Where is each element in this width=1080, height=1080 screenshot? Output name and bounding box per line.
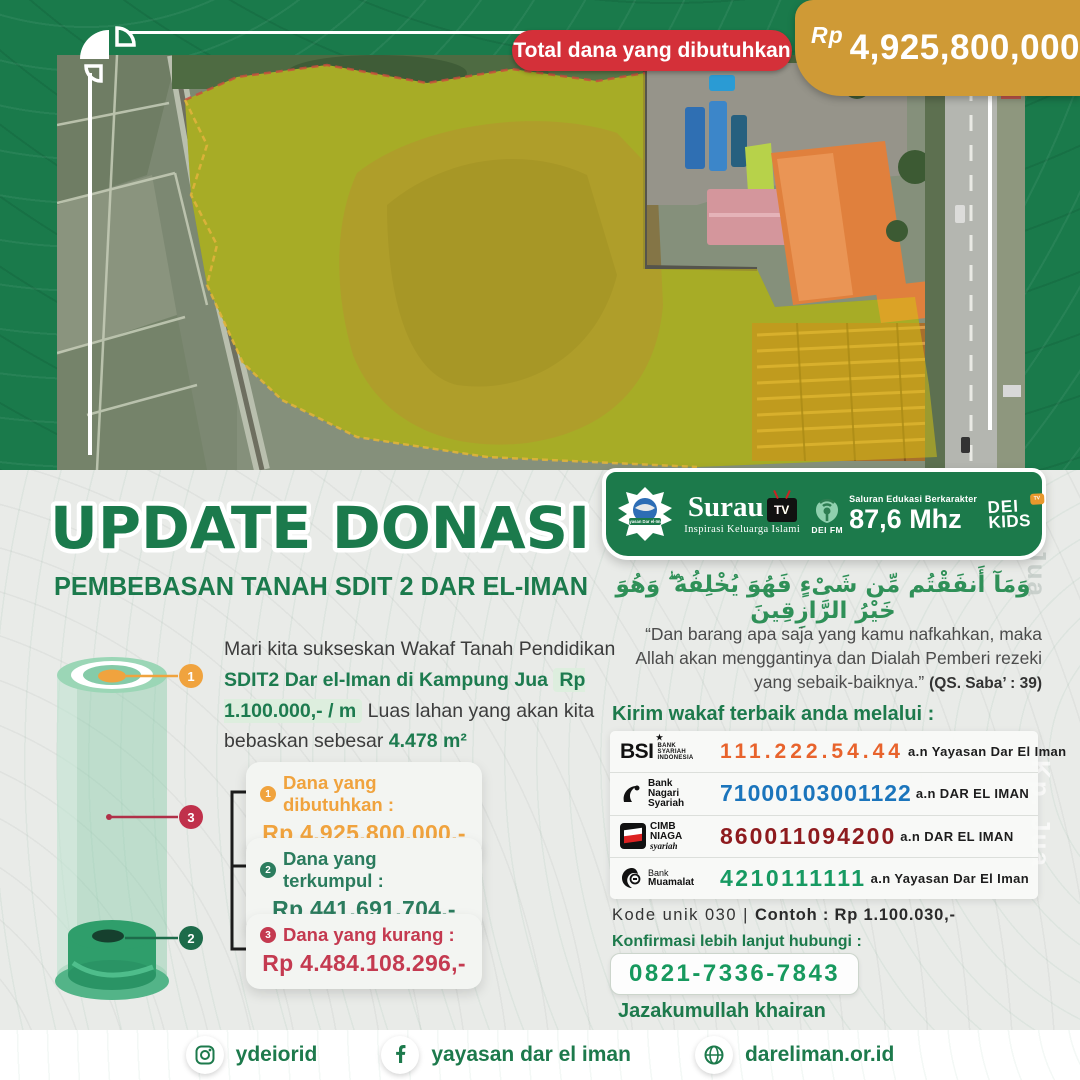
dei-fm-frequency: 87,6 Mhz [849, 506, 977, 533]
tv-letters: TV [774, 504, 789, 516]
nagari-line: Syariah [648, 799, 684, 809]
donation-poster: Total dana yang dibutuhkan Rp 4,925,800,… [0, 0, 1080, 1080]
bank-muamalat-logo: Bank Muamalat [620, 866, 716, 890]
cimb-syariah-script: syariah [650, 842, 682, 851]
bsi-wordmark: BSI [620, 740, 654, 764]
unique-code-example: Contoh : Rp 1.100.030,- [755, 906, 956, 924]
currency-label: Rp [811, 22, 844, 49]
nagari-account-holder: a.n DAR EL IMAN [916, 786, 1078, 801]
bank-row-muamalat: Bank Muamalat 4210111111 a.n Yayasan Dar… [610, 857, 1038, 899]
card-number-badge: 2 [260, 862, 276, 878]
muamalat-account-number: 4210111111 [720, 865, 867, 892]
muamalat-account-holder: a.n Yayasan Dar El Iman [871, 871, 1033, 886]
nagari-crescent-icon [620, 782, 644, 806]
instagram-item[interactable]: ydeiorid [186, 1036, 318, 1074]
card-value: Rp 4.484.108.296,- [260, 950, 468, 977]
bank-row-nagari: Bank Nagari Syariah 71000103001122 a.n D… [610, 772, 1038, 814]
surau-tv-tagline: Inspirasi Keluarga Islami [684, 525, 800, 536]
bank-row-cimb: CIMB NIAGA syariah 860011094200 a.n DAR … [610, 815, 1038, 857]
cimb-square-icon [620, 823, 646, 849]
card-number-badge: 3 [260, 927, 276, 943]
confirmation-heading: Konfirmasi lebih lanjut hubungi : [612, 933, 862, 951]
verse-reference: (QS. Saba’ : 39) [929, 675, 1042, 692]
yayasan-dar-el-iman-logo: Yayasan Dar el-Iman [617, 486, 673, 542]
aerial-photo-graphic [57, 55, 1025, 470]
contact-phone-number[interactable]: 0821-7336-7843 [610, 953, 859, 995]
bsi-logo: BSI BANK SYARIAH INDONESIA [620, 740, 716, 764]
intro-paragraph: Mari kita sukseskan Wakaf Tanah Pendidik… [224, 634, 620, 757]
title-text: UPDATE DONASI [50, 494, 590, 562]
collected-dot [92, 930, 124, 943]
quran-verse-arabic: وَمَآ أَنفَقْتُم مِّن شَىْءٍ فَهُوَ يُخْ… [600, 572, 1046, 624]
total-needed-pill: Total dana yang dibutuhkan [512, 30, 792, 71]
intro-school-name: SDIT2 [224, 669, 279, 691]
aerial-land-photo [57, 55, 1025, 470]
marker-3-number: 3 [187, 810, 194, 825]
bsi-account-number: 111.222.54.44 [720, 740, 904, 764]
website-item[interactable]: dareliman.or.id [695, 1036, 894, 1074]
card-dana-kurang: 3 Dana yang kurang : Rp 4.484.108.296,- [246, 914, 482, 989]
cimb-account-holder: a.n DAR EL IMAN [900, 829, 1062, 844]
total-amount-value: 4,925,800,000,- [850, 28, 1080, 68]
card-label: Dana yang kurang : [283, 924, 455, 946]
card-label: Dana yang dibutuhkan : [283, 772, 468, 816]
facebook-item[interactable]: yayasan dar el iman [381, 1036, 631, 1074]
card-label: Dana yang terkumpul : [283, 848, 468, 892]
dei-fm-logo: DEI FM Saluran Edukasi Berkarakter 87,6 … [811, 494, 977, 535]
surau-tv-logo: Surau TV Inspirasi Keluarga Islami [684, 493, 800, 536]
surau-tv-name: Surau [688, 493, 764, 522]
page-title: UPDATE DONASI [42, 488, 602, 566]
land-area-value: 4.478 m² [389, 730, 467, 752]
donate-heading: Kirim wakaf terbaik anda melalui : [612, 703, 934, 726]
total-amount-box: Rp 4,925,800,000,- [795, 0, 1080, 96]
yayasan-name: Yayasan Dar el-Iman [625, 519, 666, 524]
instagram-icon [186, 1036, 224, 1074]
cimb-niaga-logo: CIMB NIAGA syariah [620, 822, 716, 851]
marker-2-number: 2 [187, 931, 194, 946]
bank-row-bsi: BSI BANK SYARIAH INDONESIA 111.222.54.44… [610, 731, 1038, 772]
bank-nagari-logo: Bank Nagari Syariah [620, 779, 716, 809]
facebook-icon [381, 1036, 419, 1074]
unique-code-text: Kode unik 030 | [612, 906, 755, 924]
page-subtitle: PEMBEBASAN TANAH SDIT 2 DAR EL-IMAN [46, 568, 606, 604]
card-number-badge: 1 [260, 786, 276, 802]
dei-fm-icon: DEI FM [811, 494, 843, 535]
top-banner-section: Total dana yang dibutuhkan Rp 4,925,800,… [0, 0, 1080, 470]
facebook-handle: yayasan dar el iman [431, 1043, 631, 1067]
nagari-account-number: 71000103001122 [720, 780, 912, 807]
intro-location: Dar el-Iman di Kampung Jua [285, 669, 548, 691]
dei-kids-line2: KIDS [988, 513, 1031, 531]
needed-dot [98, 670, 126, 683]
tv-icon: TV [767, 498, 797, 522]
subtitle-text: PEMBEBASAN TANAH SDIT 2 DAR EL-IMAN [54, 571, 588, 601]
globe-icon [695, 1036, 733, 1074]
bank-accounts-card: BSI BANK SYARIAH INDONESIA 111.222.54.44… [610, 731, 1038, 899]
bsi-account-holder: a.n Yayasan Dar El Iman [908, 744, 1070, 759]
footer-social-bar: ydeiorid yayasan dar el iman dareliman.o… [0, 1030, 1080, 1080]
dei-kids-tv-badge: TV [1030, 493, 1045, 505]
website-url: dareliman.or.id [745, 1043, 894, 1067]
muamalat-line: Muamalat [648, 878, 694, 888]
total-needed-label: Total dana yang dibutuhkan [513, 39, 790, 63]
quran-verse-translation: “Dan barang apa saja yang kamu nafkahkan… [612, 622, 1042, 695]
closing-text: Jazakumullah khairan [618, 1000, 826, 1023]
decor-line-horizontal [127, 31, 542, 34]
dei-kids-logo: DEI KIDS TV [987, 498, 1031, 531]
instagram-handle: ydeiorid [236, 1043, 318, 1067]
muamalat-icon [620, 866, 644, 890]
fund-cylinder-chart: 1 3 2 [45, 645, 220, 1025]
cimb-account-number: 860011094200 [720, 823, 896, 850]
intro-text-1: Mari kita sukseskan Wakaf Tanah Pendidik… [224, 638, 615, 660]
media-logos-bar: Yayasan Dar el-Iman Surau TV Inspirasi K… [602, 468, 1046, 560]
dei-fm-tagline: Saluran Edukasi Berkarakter [849, 495, 977, 504]
marker-1-number: 1 [187, 669, 194, 684]
dei-fm-label: DEI FM [811, 525, 843, 535]
bsi-line: INDONESIA [658, 755, 694, 761]
unique-code-line: Kode unik 030 | Contoh : Rp 1.100.030,- [612, 906, 956, 925]
